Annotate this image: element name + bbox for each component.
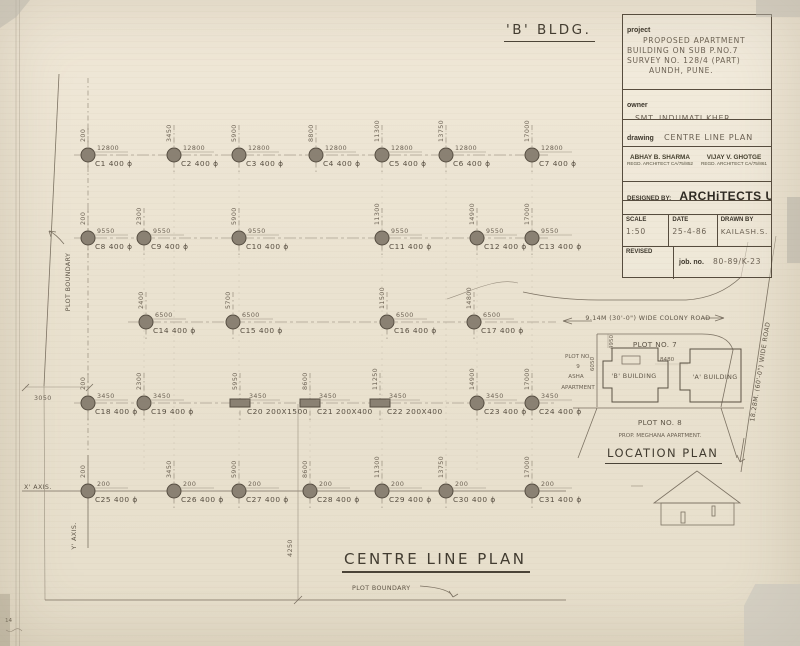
owner-label: owner [627, 102, 648, 109]
column-marker [232, 231, 246, 245]
column-c28: 200C28 400 ϕ8600 [302, 460, 360, 509]
column-label: C9 400 ϕ [151, 242, 189, 251]
column-c12: 9550C12 400 ϕ14900 [469, 203, 527, 256]
job-no-value: 80-89/K-23 [713, 257, 761, 266]
column-marker [439, 148, 453, 162]
column-label: C26 400 ϕ [181, 495, 224, 504]
column-x-dim: 8600 [302, 372, 309, 390]
sheet-border-lines [16, 0, 20, 646]
column-x-dim: 11300 [374, 120, 381, 142]
column-label: C25 400 ϕ [95, 495, 138, 504]
column-y-dim: 12800 [248, 145, 270, 152]
column-marker [137, 231, 151, 245]
tape-mark-right [787, 197, 800, 263]
column-x-dim: 11500 [379, 287, 386, 309]
column-label: C5 400 ϕ [389, 159, 427, 168]
svg-text:4250: 4250 [287, 539, 294, 557]
column-x-dim: 11250 [372, 368, 379, 390]
column-label: C21 200X400 [317, 407, 373, 416]
column-label: C18 400 ϕ [95, 407, 138, 416]
column-label: C19 400 ϕ [151, 407, 194, 416]
plot7-label: PLOT NO. 7 [633, 340, 677, 349]
title-block-drawing: drawing CENTRE LINE PLAN [623, 119, 771, 146]
column-y-dim: 3450 [97, 393, 115, 400]
column-label: C1 400 ϕ [95, 159, 133, 168]
column-y-dim: 200 [455, 481, 468, 488]
column-y-dim: 3450 [153, 393, 171, 400]
column-x-dim: 5700 [225, 291, 232, 309]
column-x-dim: 13750 [438, 120, 445, 142]
column-x-dim: 17000 [524, 203, 531, 225]
column-x-dim: 2300 [136, 207, 143, 225]
column-x-dim: 200 [80, 465, 87, 478]
column-x-dim: 5900 [231, 207, 238, 225]
column-label: C27 400 ϕ [246, 495, 289, 504]
column-c14: 6500C14 400 ϕ2400 [138, 291, 196, 340]
column-label: C29 400 ϕ [389, 495, 432, 504]
column-c4: 12800C4 400 ϕ8800 [308, 124, 361, 173]
column-y-dim: 12800 [541, 145, 563, 152]
column-marker [232, 484, 246, 498]
column-y-dim: 200 [319, 481, 332, 488]
column-label: C23 400 ϕ [484, 407, 527, 416]
column-marker [380, 315, 394, 329]
column-y-dim: 9550 [248, 228, 266, 235]
location-plan-title: LOCATION PLAN [605, 446, 722, 464]
column-c19: 3450C19 400 ϕ2300 [136, 372, 194, 421]
column-y-dim: 3450 [389, 393, 407, 400]
column-marker [81, 484, 95, 498]
title-block-address: 31/1, karve road, poona 411 004 ● 30226 [623, 200, 771, 214]
tape-mark-bottom-right [744, 584, 800, 646]
column-label: C8 400 ϕ [95, 242, 133, 251]
b-building-detail [622, 356, 640, 364]
column-marker [470, 396, 484, 410]
column-marker [167, 484, 181, 498]
column-label: C30 400 ϕ [453, 495, 496, 504]
column-y-dim: 3450 [486, 393, 504, 400]
column-c30: 200C30 400 ϕ13750 [438, 456, 496, 509]
plot-boundary-bottom-line [45, 586, 566, 600]
column-y-dim: 12800 [325, 145, 347, 152]
column-y-dim: 12800 [391, 145, 413, 152]
column-x-dim: 2400 [138, 291, 145, 309]
date-value: 25-4-86 [672, 227, 713, 236]
colony-road-label: 9.14M (30'-0") WIDE COLONY ROAD [585, 315, 710, 322]
column-x-dim: 11300 [374, 456, 381, 478]
column-label: C3 400 ϕ [246, 159, 284, 168]
column-x-dim: 5900 [231, 460, 238, 478]
drawing-sheet: X' AXIS. Y' AXIS. PLOT BOUNDARY 3050 PLO… [0, 0, 800, 646]
column-x-dim: 17000 [524, 456, 531, 478]
column-x-dim: 200 [80, 212, 87, 225]
tape-mark-top-right [756, 0, 800, 17]
plot9-label-3: ASHA [568, 374, 584, 380]
column-label: C13 400 ϕ [539, 242, 582, 251]
column-label: C14 400 ϕ [153, 326, 196, 335]
column-x-dim: 17000 [524, 120, 531, 142]
architect1-reg: REGD. ARCHITECT CA/75/852 [623, 161, 697, 166]
bldg-title: 'B' BLDG. [504, 22, 595, 42]
title-block-revised-row: REVISED job. no. 80-89/K-23 drg.no. 4808 [623, 246, 771, 279]
plot9-label-1: PLOT NO. [565, 354, 591, 360]
column-label: C28 400 ϕ [317, 495, 360, 504]
dim-4250-line: 4250 [287, 404, 302, 604]
column-y-dim: 12800 [455, 145, 477, 152]
column-c9: 9550C9 400 ϕ2300 [136, 207, 189, 256]
column-y-dim: 200 [391, 481, 404, 488]
column-x-dim: 200 [80, 377, 87, 390]
column-c7: 12800C7 400 ϕ17000 [524, 120, 577, 173]
column-marker [167, 148, 181, 162]
title-block-owner: owner SMT. INDUMATI KHER. [623, 89, 771, 119]
title-block: project PROPOSED APARTMENT BUILDING ON S… [622, 14, 772, 278]
column-y-dim: 200 [248, 481, 261, 488]
date-label: DATE [672, 217, 713, 223]
column-marker [467, 315, 481, 329]
column-marker [439, 484, 453, 498]
drawing-value: CENTRE LINE PLAN [664, 132, 753, 142]
a-building-label: 'A' BUILDING [692, 374, 737, 381]
house-symbol [631, 471, 740, 525]
column-x-dim: 13750 [438, 456, 445, 478]
column-marker [303, 484, 317, 498]
column-y-dim: 200 [183, 481, 196, 488]
column-label: C17 400 ϕ [481, 326, 524, 335]
column-y-dim: 12800 [183, 145, 205, 152]
column-x-dim: 3450 [166, 124, 173, 142]
column-label: C2 400 ϕ [181, 159, 219, 168]
column-y-dim: 200 [97, 481, 110, 488]
column-marker [81, 148, 95, 162]
svg-text:3050: 3050 [34, 395, 52, 402]
column-y-dim: 9550 [97, 228, 115, 235]
column-y-dim: 3450 [249, 393, 267, 400]
wide-road-label: 18.28M. (60'-0") WIDE ROAD [749, 321, 772, 422]
column-label: C22 200X400 [387, 407, 443, 416]
firm-name: ARCHiTECTS UNiTED [679, 189, 771, 200]
column-marker [525, 148, 539, 162]
title-block-sdd-row: SCALE 1:50 DATE 25-4-86 DRAWN BY KAILASH… [623, 214, 771, 246]
column-marker [226, 315, 240, 329]
drawing-label: drawing [627, 135, 654, 142]
column-y-dim: 3450 [541, 393, 559, 400]
column-label: C6 400 ϕ [453, 159, 491, 168]
architect2-name: VIJAY V. GHOTGE [697, 154, 771, 161]
column-x-dim: 8800 [308, 124, 315, 142]
column-c29: 200C29 400 ϕ11300 [374, 456, 432, 509]
project-label: project [627, 27, 650, 34]
column-c22: 3450C22 200X40011250 [370, 368, 443, 421]
plot8-label: PLOT NO. 8 [638, 418, 682, 427]
x-axis-label: X' AXIS. [24, 484, 52, 491]
column-y-dim: 3450 [319, 393, 337, 400]
column-label: C31 400 ϕ [539, 495, 582, 504]
column-marker [81, 231, 95, 245]
column-y-dim: 9550 [486, 228, 504, 235]
plot9-label-4: APARTMENT [561, 385, 595, 391]
column-c31: 200C31 400 ϕ17000 [524, 456, 582, 509]
column-c25: 200C25 400 ϕ200 [80, 461, 138, 509]
y-axis-label: Y' AXIS. [71, 522, 78, 550]
plot8-sub-label: PROP. MEGHANA APARTMENT. [619, 433, 702, 439]
title-block-project: project PROPOSED APARTMENT BUILDING ON S… [623, 15, 771, 89]
b-building-label: 'B' BUILDING [611, 373, 656, 380]
column-label: C7 400 ϕ [539, 159, 577, 168]
title-block-designed: DESIGNED BY: ARCHiTECTS UNiTED [623, 181, 771, 200]
plot9-label-2: 9 [576, 364, 580, 370]
column-x-dim: 5900 [231, 124, 238, 142]
column-y-dim: 6500 [242, 312, 260, 319]
scale-label: SCALE [626, 217, 665, 223]
wide-road-edge [741, 268, 771, 472]
column-marker [137, 396, 151, 410]
column-y-dim: 9550 [153, 228, 171, 235]
column-x-dim: 11300 [374, 203, 381, 225]
column-c11: 9550C11 400 ϕ11300 [374, 203, 432, 256]
column-label: C24 400 ϕ [539, 407, 582, 416]
dim-4950: 4950 [609, 334, 615, 349]
column-c26: 200C26 400 ϕ3450 [166, 460, 224, 509]
project-line: PROPOSED APARTMENT [643, 36, 767, 46]
column-marker [375, 148, 389, 162]
column-y-dim: 12800 [97, 145, 119, 152]
column-marker [375, 231, 389, 245]
column-marker [232, 148, 246, 162]
column-c10: 9550C10 400 ϕ5900 [231, 207, 289, 256]
plan-title: CENTRE LINE PLAN [342, 550, 530, 573]
column-x-dim: 8600 [302, 460, 309, 478]
architect1-name: ABHAY B. SHARMA [623, 154, 697, 161]
column-x-dim: 14900 [469, 203, 476, 225]
project-line: BUILDING ON SUB P.NO.7 [627, 46, 767, 56]
architect2-reg: REGD. ARCHITECT CA/75/861 [697, 161, 771, 166]
column-c16: 6500C16 400 ϕ11500 [379, 287, 437, 340]
column-marker [525, 231, 539, 245]
column-c18: 3450C18 400 ϕ200 [80, 373, 138, 421]
column-c23: 3450C23 400 ϕ14900 [469, 368, 527, 421]
column-marker [525, 396, 539, 410]
column-marker [375, 484, 389, 498]
column-c20: 3450C20 200X15005950 [230, 372, 308, 421]
column-y-dim: 200 [541, 481, 554, 488]
column-y-dim: 6500 [483, 312, 501, 319]
plot-boundary-bottom-label: PLOT BOUNDARY [352, 585, 410, 592]
column-y-dim: 6500 [155, 312, 173, 319]
column-x-dim: 17000 [524, 368, 531, 390]
revised-label: REVISED [626, 249, 670, 255]
column-x-dim: 14800 [466, 287, 473, 309]
column-marker [309, 148, 323, 162]
drawn-by-label: DRAWN BY [721, 217, 768, 223]
plot-boundary-left-label: PLOT BOUNDARY [65, 253, 72, 311]
column-y-dim: 6500 [396, 312, 414, 319]
column-x-dim: 3450 [166, 460, 173, 478]
location-plan: 9.14M (30'-0") WIDE COLONY ROAD 18.28M. … [447, 236, 776, 525]
tape-mark-bottom-left [0, 594, 10, 646]
column-label: C16 400 ϕ [394, 326, 437, 335]
plot-boundary-left-line [44, 74, 64, 600]
column-c8: 9550C8 400 ϕ200 [80, 208, 133, 256]
column-label: C12 400 ϕ [484, 242, 527, 251]
column-marker [139, 315, 153, 329]
column-x-dim: 14900 [469, 368, 476, 390]
column-marker [81, 396, 95, 410]
column-y-dim: 9550 [541, 228, 559, 235]
column-label: C10 400 ϕ [246, 242, 289, 251]
column-x-dim: 2300 [136, 372, 143, 390]
column-label: C20 200X1500 [247, 407, 308, 416]
column-y-dim: 9550 [391, 228, 409, 235]
colony-road-edge [523, 277, 741, 300]
title-block-architects: ABHAY B. SHARMA REGD. ARCHITECT CA/75/85… [623, 146, 771, 181]
column-c17: 6500C17 400 ϕ14800 [466, 287, 524, 340]
column-c27: 200C27 400 ϕ5900 [231, 460, 289, 509]
column-c5: 12800C5 400 ϕ11300 [374, 120, 427, 173]
column-c21: 3450C21 200X4008600 [300, 372, 373, 421]
project-line: AUNDH, PUNE. [649, 66, 767, 76]
column-x-dim: 200 [80, 129, 87, 142]
column-label: C11 400 ϕ [389, 242, 432, 251]
column-marker [470, 231, 484, 245]
column-marker [525, 484, 539, 498]
column-label: C15 400 ϕ [240, 326, 283, 335]
column-c13: 9550C13 400 ϕ17000 [524, 203, 582, 256]
scale-value: 1:50 [626, 227, 665, 236]
column-label: C4 400 ϕ [323, 159, 361, 168]
column-c6: 12800C6 400 ϕ13750 [438, 120, 491, 173]
dim-8480: 8480 [660, 357, 675, 363]
road-curve-left [447, 282, 518, 299]
column-c15: 6500C15 400 ϕ5700 [225, 291, 283, 340]
job-no-label: job. no. [679, 259, 704, 266]
drawn-by-value: KAILASH.S. [721, 227, 768, 236]
project-line: SURVEY NO. 128/4 (PART) [627, 56, 767, 66]
column-x-dim: 5950 [232, 372, 239, 390]
